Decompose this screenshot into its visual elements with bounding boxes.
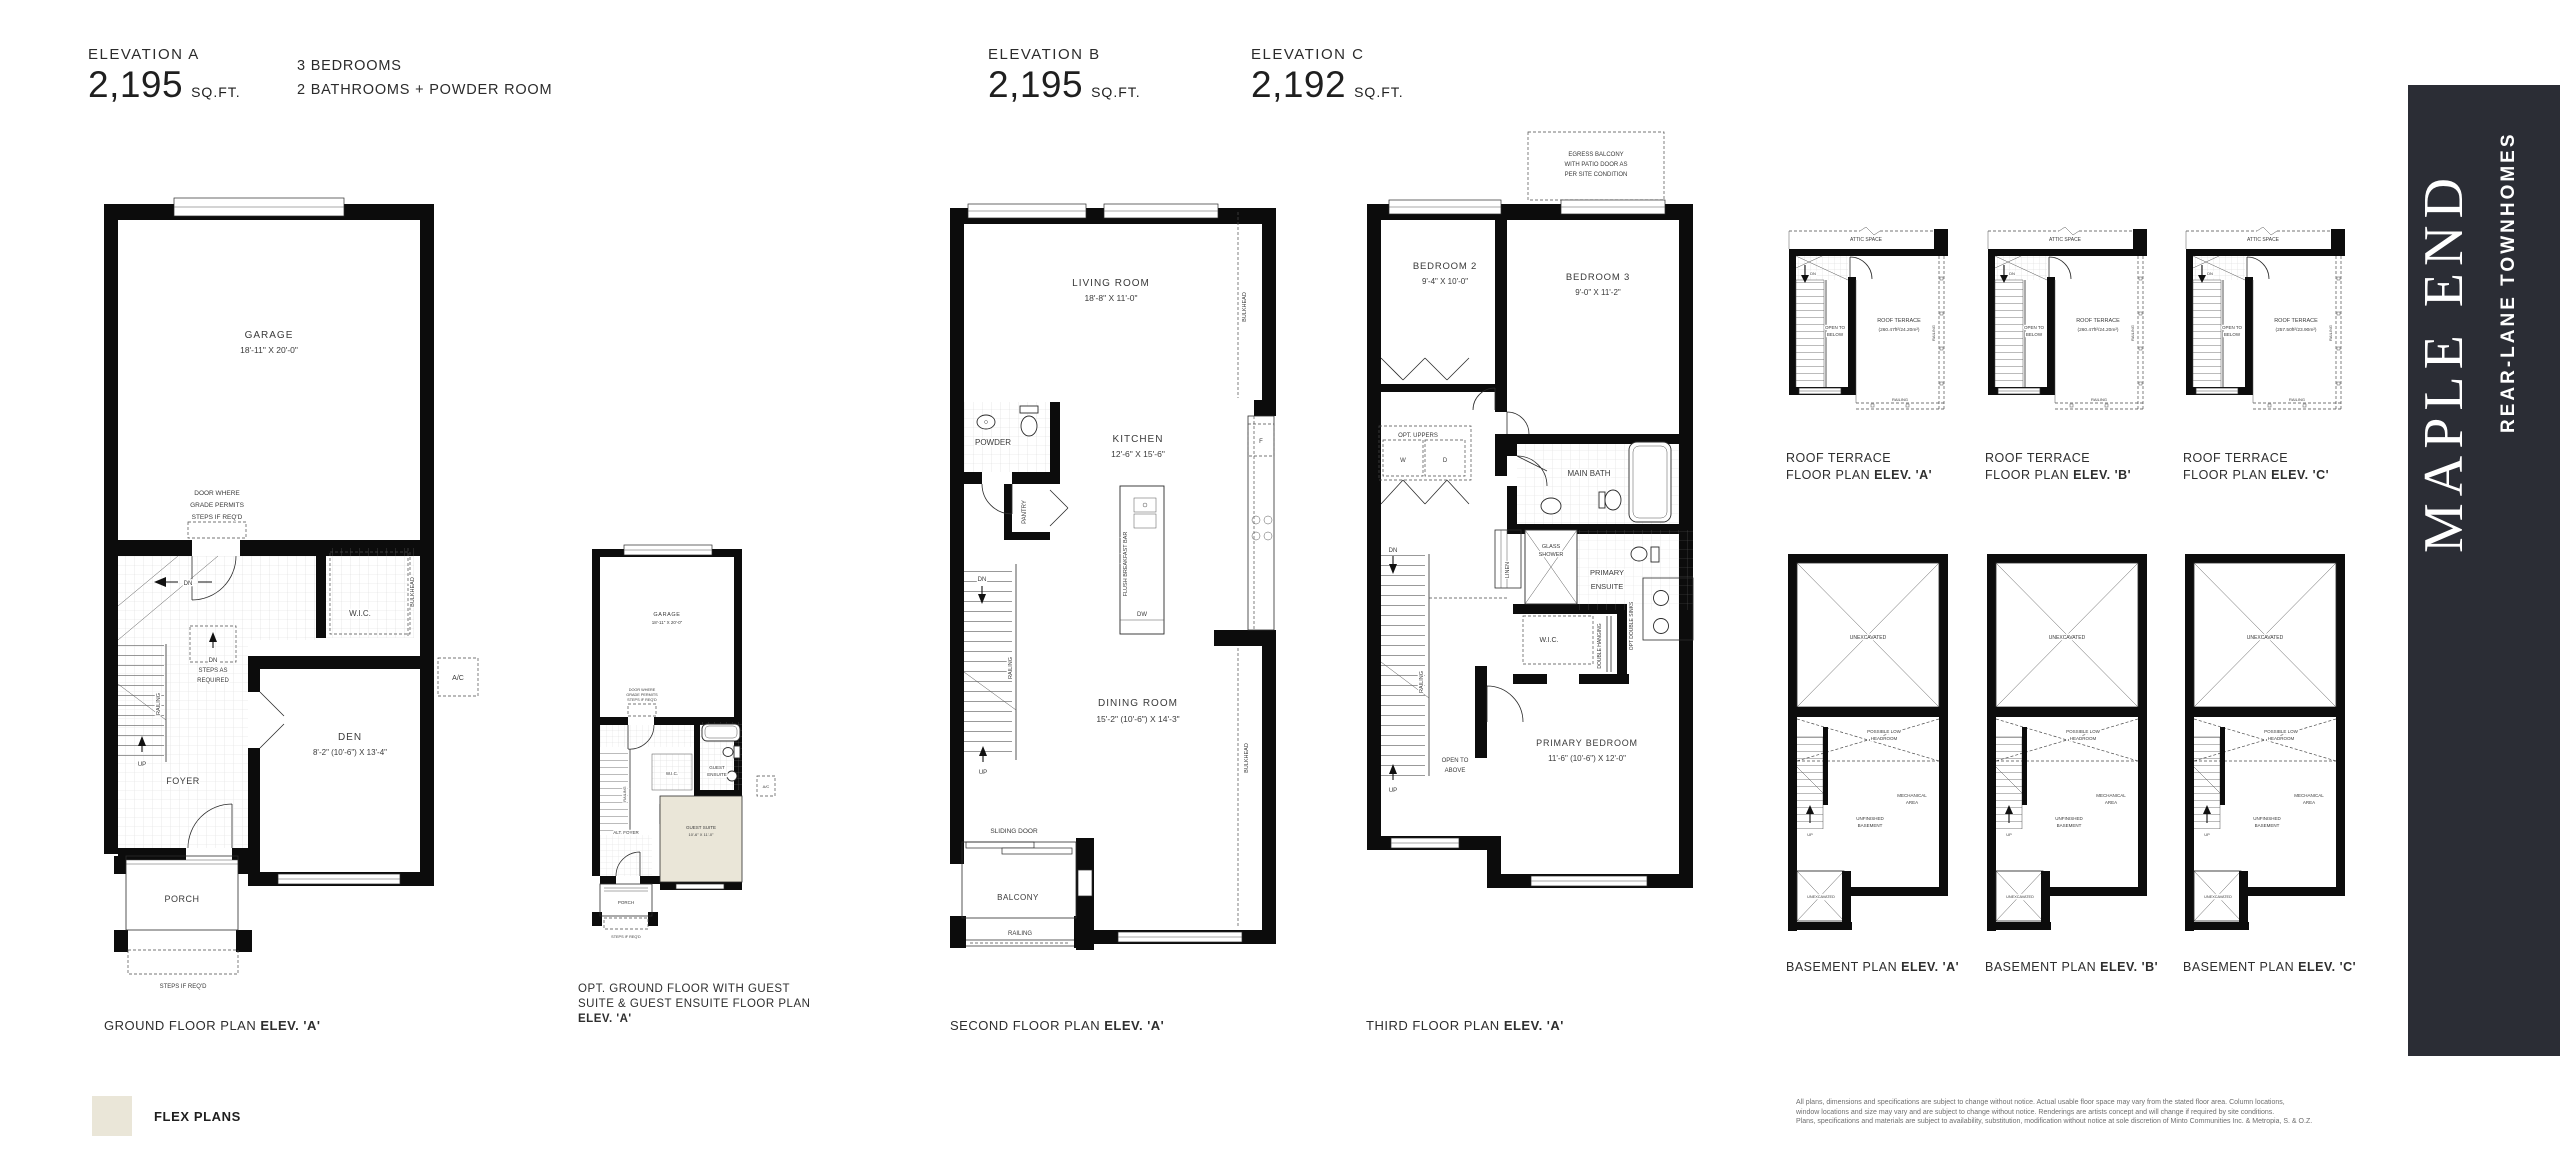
disclaimer-line-2: window locations and size may vary and a… <box>1796 1108 2312 1118</box>
label-railing: RAILING <box>1419 671 1425 693</box>
room-dim-bedroom2: 9'-4" X 10'-0" <box>1422 277 1468 286</box>
basement-plan-b: UNEXCAVATED POSSIBLE LOW HEADROOM MECHAN… <box>1985 549 2157 949</box>
room-label-wic: W.I.C. <box>666 771 678 776</box>
room-dim-living: 18'-8" X 11'-0" <box>1084 293 1137 303</box>
note-door-grade-3: STEPS IF REQ'D <box>192 514 243 521</box>
basement-plan-c: UNEXCAVATED POSSIBLE LOW HEADROOM MECHAN… <box>2183 549 2355 949</box>
room-label-foyer: FOYER <box>166 776 200 786</box>
label-railing-bottom: RAILING <box>2091 397 2107 402</box>
room-dim-kitchen: 12'-6" X 15'-6" <box>1111 449 1165 459</box>
room-label-garage: GARAGE <box>653 612 680 618</box>
label-railing-side: RAILING <box>2130 325 2135 341</box>
room-label-garage: GARAGE <box>245 330 294 341</box>
label-unfinished-1: UNFINISHED <box>2253 816 2281 821</box>
label-ac: A/C <box>452 675 464 682</box>
room-dim-guest-suite: 10'-6" X 11'-0" <box>689 832 715 837</box>
elevation-b-label: ELEVATION B <box>988 46 1141 63</box>
room-label-living: LIVING ROOM <box>1072 278 1150 289</box>
label-open-below-2: BELOW <box>2224 332 2241 337</box>
label-up: UP <box>138 762 146 768</box>
roof-terrace-plan-a: ATTIC SPACE DN OPEN TO BELOW ROOF TERRAC… <box>1786 227 1964 423</box>
room-label-den: DEN <box>338 732 362 743</box>
label-ac: A/C <box>763 784 770 789</box>
label-railing: RAILING <box>1008 657 1014 679</box>
elevation-c-sqft: 2,192 <box>1251 64 1346 106</box>
label-up: UP <box>1389 788 1397 794</box>
label-railing: RAILING <box>623 786 627 801</box>
roof-structure <box>1789 227 1948 409</box>
third-floor-plan: EGRESS BALCONY WITH PATIO DOOR AS PER SI… <box>1363 126 1698 901</box>
floor-patterns <box>964 212 1238 928</box>
room-label-guest-ensuite-2: ENSUITE <box>707 772 727 777</box>
room-label-balcony: BALCONY <box>997 893 1039 902</box>
label-unfinished-1: UNFINISHED <box>1856 816 1884 821</box>
caption-basement-b: BASEMENT PLAN ELEV. 'B' <box>1985 959 2158 976</box>
label-open-below-1: OPEN TO <box>2024 325 2045 330</box>
label-mechanical-1: MECHANICAL <box>1897 793 1927 798</box>
note-door-grade-2: GRADE PERMITS <box>626 693 658 697</box>
label-unexcavated-small: UNEXCAVATED <box>2204 895 2232 899</box>
unit-features: 3 BEDROOMS 2 BATHROOMS + POWDER ROOM <box>297 54 552 102</box>
room-label-primary-ensuite-2: ENSUITE <box>1591 582 1624 591</box>
label-mechanical-2: AREA <box>1906 800 1918 805</box>
roof-terrace-area: (260.47ft²/24.20m²) <box>1878 327 1919 333</box>
room-dim-dining: 15'-2" (10'-6") X 14'-3" <box>1096 714 1179 724</box>
roof-terrace-plan-c: ATTIC SPACE DN OPEN TO BELOW ROOF TERRAC… <box>2183 227 2361 423</box>
elevation-b-header: ELEVATION B 2,195 SQ.FT. <box>988 46 1141 106</box>
room-label-roof-terrace: ROOF TERRACE <box>2076 318 2120 324</box>
note-egress-1: EGRESS BALCONY <box>1568 152 1623 158</box>
elevation-c-label: ELEVATION C <box>1251 46 1404 63</box>
room-label-porch: PORCH <box>618 900 634 905</box>
label-up: UP <box>979 770 987 776</box>
label-low-headroom-1: POSSIBLE LOW <box>2264 729 2299 734</box>
room-label-guest-ensuite-1: GUEST <box>709 765 725 770</box>
room-dim-den: 8'-2" (10'-6") X 13'-4" <box>313 748 387 757</box>
label-railing: RAILING <box>156 693 162 715</box>
basement-plan-a: UNEXCAVATED POSSIBLE LOW HEADROOM MECHAN… <box>1786 549 1958 949</box>
note-door-grade-1: DOOR WHERE <box>629 688 656 692</box>
note-steps-2: STEPS AS <box>198 668 227 674</box>
roof-structure <box>2186 227 2345 409</box>
label-unfinished-2: BASEMENT <box>2057 823 2082 828</box>
room-label-porch: PORCH <box>164 894 199 904</box>
roof-terrace-area: (257.50ft²/23.90m²) <box>2275 327 2316 333</box>
caption-opt-ground-floor: OPT. GROUND FLOOR WITH GUEST SUITE & GUE… <box>578 982 810 1027</box>
label-glass-shower-1: GLASS <box>1542 544 1561 550</box>
room-dim-bedroom3: 9'-0" X 11'-2" <box>1575 288 1621 297</box>
elevation-c-sqft-unit: SQ.FT. <box>1354 84 1404 100</box>
label-open-below-2: BELOW <box>1827 332 1844 337</box>
label-mechanical-2: AREA <box>2303 800 2315 805</box>
room-label-wic: W.I.C. <box>349 609 371 618</box>
label-unexcavated: UNEXCAVATED <box>2247 635 2284 641</box>
caption-roof-terrace-b: ROOF TERRACE FLOOR PLAN ELEV. 'B' <box>1985 450 2131 484</box>
caption-ground-floor: GROUND FLOOR PLAN ELEV. 'A' <box>104 1018 320 1033</box>
caption-roof-terrace-a: ROOF TERRACE FLOOR PLAN ELEV. 'A' <box>1786 450 1932 484</box>
label-dn: DN <box>184 581 193 587</box>
label-sliding-door: SLIDING DOOR <box>990 828 1038 835</box>
caption-second-floor: SECOND FLOOR PLAN ELEV. 'A' <box>950 1018 1164 1033</box>
label-double-hanging: DOUBLE HANGING <box>1597 623 1603 668</box>
label-attic-space: ATTIC SPACE <box>1850 237 1883 243</box>
ground-floor-plan: GARAGE 18'-11" X 20'-0" DOOR WHERE GRADE… <box>98 196 488 998</box>
label-up: UP <box>2204 832 2210 837</box>
label-mechanical-1: MECHANICAL <box>2096 793 2126 798</box>
label-unexcavated: UNEXCAVATED <box>1850 635 1887 641</box>
label-attic-space: ATTIC SPACE <box>2247 237 2280 243</box>
brand-sidebar: MAPLE END REAR-LANE TOWNHOMES <box>2408 85 2560 1056</box>
stairs <box>1381 554 1507 780</box>
label-open-below-2: BELOW <box>2026 332 2043 337</box>
elevation-a-header: ELEVATION A 2,195 SQ.FT. <box>88 46 241 106</box>
label-bulkhead-lower: BULKHEAD <box>1244 743 1250 773</box>
label-low-headroom-1: POSSIBLE LOW <box>1867 729 1902 734</box>
room-label-roof-terrace: ROOF TERRACE <box>1877 318 1921 324</box>
label-dryer: D <box>1443 458 1448 464</box>
label-unfinished-2: BASEMENT <box>1858 823 1883 828</box>
brand-subtitle-vertical: REAR-LANE TOWNHOMES <box>2498 131 2520 433</box>
caption-basement-a: BASEMENT PLAN ELEV. 'A' <box>1786 959 1959 976</box>
label-low-headroom-2: HEADROOM <box>2070 736 2097 741</box>
elevation-a-sqft: 2,195 <box>88 64 183 106</box>
caption-basement-c: BASEMENT PLAN ELEV. 'C' <box>2183 959 2356 976</box>
label-fridge: F <box>1259 439 1263 445</box>
note-door-grade-1: DOOR WHERE <box>194 490 240 497</box>
disclaimer-line-3: Plans, specifications and materials are … <box>1796 1117 2312 1127</box>
note-steps-3: REQUIRED <box>197 678 229 684</box>
label-mechanical-2: AREA <box>2105 800 2117 805</box>
label-open-above-1: OPEN TO <box>1442 758 1469 764</box>
room-label-pantry: PANTRY <box>1022 500 1028 524</box>
brand-title-vertical: MAPLE END <box>2412 171 2476 553</box>
note-steps-1: DN <box>209 658 218 664</box>
label-breakfast-bar: FLUSH BREAKFAST BAR <box>1123 532 1129 597</box>
label-glass-shower-2: SHOWER <box>1539 552 1564 558</box>
label-opt-double-sinks: OPT DOUBLE SINKS <box>1629 601 1635 650</box>
ensuite-fixtures <box>1495 530 1693 672</box>
label-bulkhead-upper: BULKHEAD <box>1242 292 1248 322</box>
label-railing-side: RAILING <box>1931 325 1936 341</box>
room-label-alt-foyer: ALT. FOYER <box>613 830 639 835</box>
caption-roof-terrace-c: ROOF TERRACE FLOOR PLAN ELEV. 'C' <box>2183 450 2329 484</box>
room-label-powder: POWDER <box>975 438 1011 447</box>
note-egress-3: PER SITE CONDITION <box>1565 172 1628 178</box>
label-open-below-1: OPEN TO <box>2222 325 2243 330</box>
label-railing-balcony: RAILING <box>1008 931 1032 937</box>
elevation-b-sqft-unit: SQ.FT. <box>1091 84 1141 100</box>
label-dn: DN <box>1389 548 1398 554</box>
room-label-linen: LINEN <box>1505 562 1511 578</box>
label-dn: DN <box>978 577 987 583</box>
elevation-c-header: ELEVATION C 2,192 SQ.FT. <box>1251 46 1404 106</box>
label-low-headroom-1: POSSIBLE LOW <box>2066 729 2101 734</box>
flex-plans-swatch <box>92 1096 132 1136</box>
label-unexcavated-small: UNEXCAVATED <box>2006 895 2034 899</box>
feature-bathrooms: 2 BATHROOMS + POWDER ROOM <box>297 78 552 102</box>
label-dn: DN <box>2207 271 2213 276</box>
label-dn: DN <box>1810 271 1816 276</box>
label-unexcavated: UNEXCAVATED <box>2049 635 2086 641</box>
label-low-headroom-2: HEADROOM <box>1871 736 1898 741</box>
roof-terrace-area: (260.47ft²/24.20m²) <box>2077 327 2118 333</box>
label-unfinished-1: UNFINISHED <box>2055 816 2083 821</box>
label-unexcavated-small: UNEXCAVATED <box>1807 895 1835 899</box>
note-steps-req: STEPS IF REQ'D <box>160 984 207 990</box>
elevation-b-sqft: 2,195 <box>988 64 1083 106</box>
feature-bedrooms: 3 BEDROOMS <box>297 54 552 78</box>
flex-plans-label: FLEX PLANS <box>154 1109 241 1124</box>
label-attic-space: ATTIC SPACE <box>2049 237 2082 243</box>
roof-structure <box>1988 227 2147 409</box>
label-unfinished-2: BASEMENT <box>2255 823 2280 828</box>
room-label-primary-bedroom: PRIMARY BEDROOM <box>1536 738 1638 748</box>
label-open-above-2: ABOVE <box>1445 768 1466 774</box>
room-label-bedroom2: BEDROOM 2 <box>1413 261 1477 272</box>
label-up: UP <box>2006 832 2012 837</box>
label-washer: W <box>1400 458 1406 464</box>
room-label-wic: W.I.C. <box>1539 637 1558 644</box>
elevation-a-label: ELEVATION A <box>88 46 241 63</box>
label-low-headroom-2: HEADROOM <box>2268 736 2295 741</box>
label-up: UP <box>1807 832 1813 837</box>
room-label-kitchen: KITCHEN <box>1113 434 1164 445</box>
room-dim-garage: 18'-11" X 20'-0" <box>652 620 683 625</box>
label-railing-bottom: RAILING <box>2289 397 2305 402</box>
label-mechanical-1: MECHANICAL <box>2294 793 2324 798</box>
disclaimer-text: All plans, dimensions and specifications… <box>1796 1098 2312 1127</box>
room-label-main-bath: MAIN BATH <box>1568 469 1611 478</box>
note-steps-req: STEPS IF REQ'D <box>611 935 641 939</box>
label-railing-bottom: RAILING <box>1892 397 1908 402</box>
label-railing-side: RAILING <box>2328 325 2333 341</box>
bath-fixtures <box>1517 442 1679 524</box>
basement-structure <box>1987 554 2147 931</box>
room-dim-garage: 18'-11" X 20'-0" <box>240 345 298 355</box>
room-label-roof-terrace: ROOF TERRACE <box>2274 318 2318 324</box>
caption-third-floor: THIRD FLOOR PLAN ELEV. 'A' <box>1366 1018 1564 1033</box>
opt-ground-floor-plan: GARAGE 18'-11" X 20'-0" DOOR WHERE GRADE… <box>576 544 781 964</box>
label-bulkhead: BULKHEAD <box>410 577 416 607</box>
room-label-guest-suite: GUEST SUITE <box>686 825 716 830</box>
second-floor-plan: LIVING ROOM 18'-8" X 11'-0" BULKHEAD POW… <box>946 202 1294 964</box>
label-dw: DW <box>1137 612 1147 618</box>
note-door-grade-2: GRADE PERMITS <box>190 502 244 509</box>
label-open-below-1: OPEN TO <box>1825 325 1846 330</box>
label-dn: DN <box>2009 271 2015 276</box>
disclaimer-line-1: All plans, dimensions and specifications… <box>1796 1098 2312 1108</box>
flex-guest-suite-area <box>660 796 742 882</box>
room-dim-primary-bedroom: 11'-6" (10'-6") X 12'-0" <box>1548 754 1626 763</box>
label-opt-uppers: OPT. UPPERS <box>1398 433 1438 439</box>
elevation-a-sqft-unit: SQ.FT. <box>191 84 241 100</box>
note-egress-2: WITH PATIO DOOR AS <box>1564 162 1627 168</box>
basement-structure <box>1788 554 1948 931</box>
room-label-dining: DINING ROOM <box>1098 698 1178 709</box>
note-door-grade-3: STEPS IF REQ'D <box>627 698 657 702</box>
basement-structure <box>2185 554 2345 931</box>
roof-terrace-plan-b: ATTIC SPACE DN OPEN TO BELOW ROOF TERRAC… <box>1985 227 2163 423</box>
floorplan-sheet: ELEVATION A 2,195 SQ.FT. 3 BEDROOMS 2 BA… <box>0 0 2560 1168</box>
room-label-primary-ensuite-1: PRIMARY <box>1590 568 1624 577</box>
room-label-bedroom3: BEDROOM 3 <box>1566 272 1630 283</box>
